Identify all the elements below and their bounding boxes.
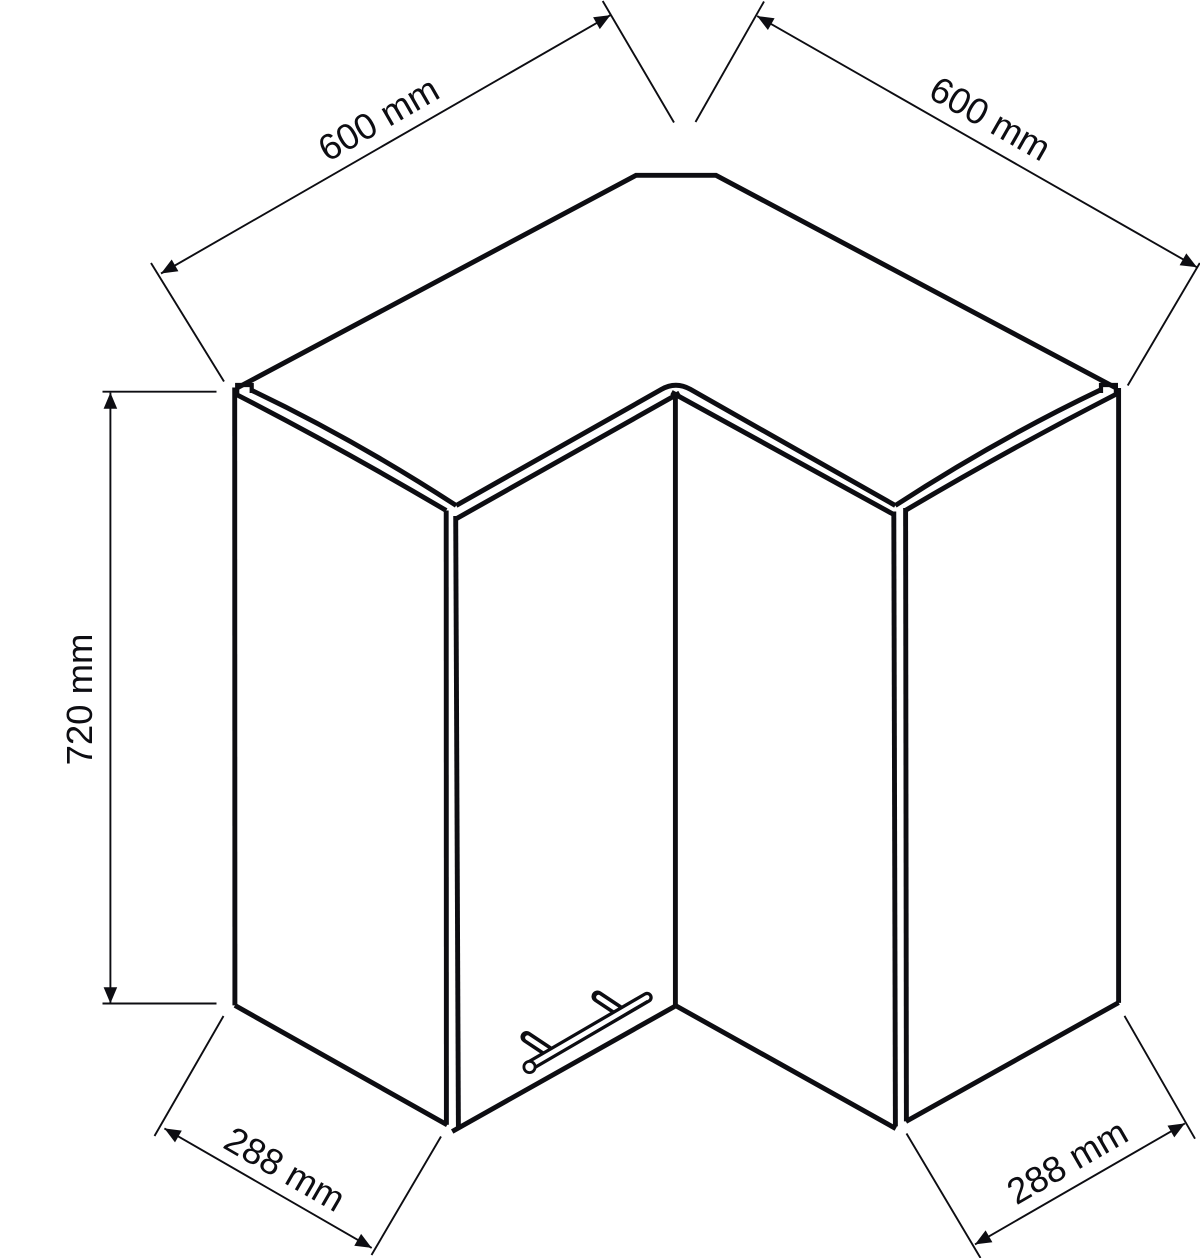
svg-text:720 mm: 720 mm [59, 634, 100, 766]
